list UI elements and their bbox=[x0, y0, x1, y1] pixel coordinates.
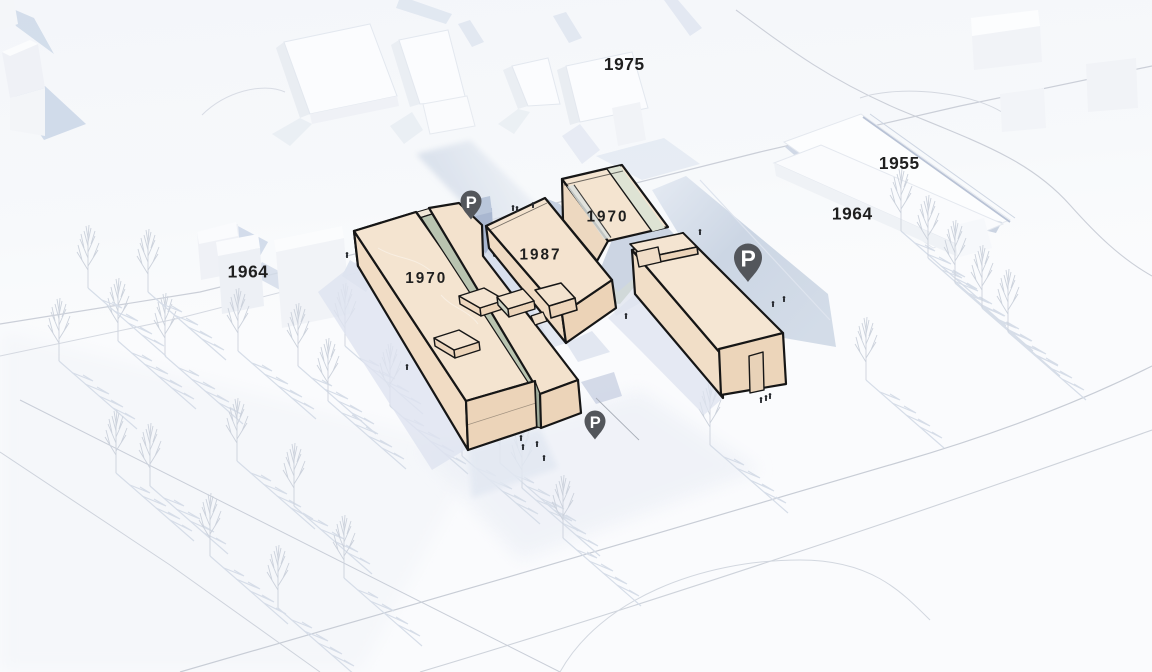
svg-text:1964: 1964 bbox=[228, 262, 269, 282]
svg-text:1987: 1987 bbox=[519, 247, 561, 264]
svg-text:1964: 1964 bbox=[832, 204, 873, 224]
svg-text:1970: 1970 bbox=[586, 209, 628, 226]
svg-text:1975: 1975 bbox=[604, 54, 645, 74]
svg-text:1955: 1955 bbox=[879, 153, 920, 173]
svg-text:1970: 1970 bbox=[405, 270, 447, 287]
